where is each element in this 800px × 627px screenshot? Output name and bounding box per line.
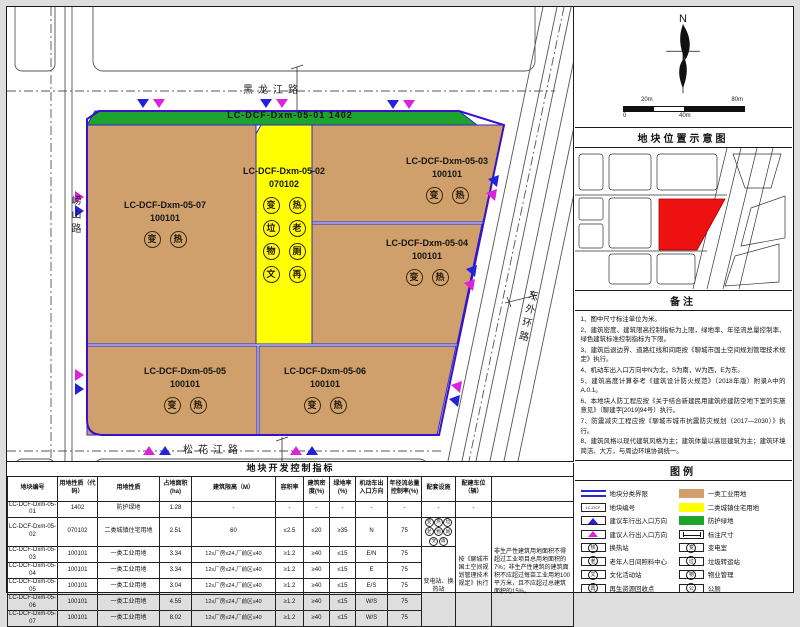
facility-icon: 热 <box>289 197 306 214</box>
ped-arrow-swatch-icon <box>581 530 606 539</box>
plot-label: LC-DCF-Dxm-05-01 1402 <box>117 109 463 122</box>
table-header-row: 地块编号用地性质（代码）用地性质占地面积(ha)建筑限高（M）容积率建筑密度(%… <box>8 476 574 501</box>
facility-icon: 热 <box>434 518 443 527</box>
legend-item: 防护绿地 <box>679 514 788 528</box>
table-cell: 75 <box>388 517 422 547</box>
table-header-cell: 占地面积(ha) <box>160 476 192 501</box>
legend-label: 建议车行出入口方向 <box>610 516 668 525</box>
facility-icon: 垃 <box>686 556 696 566</box>
plot-label: LC-DCF-Dxm-05-06100101变热 <box>241 365 409 414</box>
legend-label: 文化活动站 <box>610 570 642 579</box>
table-cell: ≥40 <box>304 579 330 595</box>
circle-swatch-icon: 热 <box>581 543 606 552</box>
pedestrian-entrance-icon <box>451 381 462 393</box>
notes-title: 备注 <box>575 291 792 311</box>
facility-icon: 再 <box>439 537 448 546</box>
facility-icon: 公 <box>686 583 696 593</box>
table-cell: - <box>330 501 356 517</box>
legend-item: 变变电室 <box>679 541 788 555</box>
table-cell: ≥40 <box>304 611 330 627</box>
table-cell: E/S <box>356 579 388 595</box>
table-cell: ≥1.2 <box>276 611 304 627</box>
table-header-cell: 容积率 <box>276 476 304 501</box>
facility-icon: 变 <box>426 187 443 204</box>
table-header-cell: 用地性质 <box>98 476 160 501</box>
plot-label: LC-DCF-Dxm-05-04100101变热 <box>343 237 511 286</box>
vehicle-entrance-icon <box>306 446 318 455</box>
table-cell: ≥40 <box>304 547 330 563</box>
table-cell: ≤2.5 <box>276 517 304 547</box>
legend-label: 标注尺寸 <box>708 530 734 539</box>
legend-item: 二类城镇住宅用地 <box>679 501 788 515</box>
legend-label: 建议人行出入口方向 <box>610 530 668 539</box>
facility-icon: 文 <box>429 537 438 546</box>
table-cell: N <box>356 517 388 547</box>
circle-swatch-icon: 物 <box>679 570 704 579</box>
table-cell: - <box>422 501 456 517</box>
legend-item: 再再生资源回收点 <box>581 582 675 596</box>
table-header-cell: 年径流总量控制率(%) <box>388 476 422 501</box>
legend-item: 标注尺寸 <box>679 528 788 542</box>
table-header-cell: 绿地率(%) <box>330 476 356 501</box>
table-cell: 1.28 <box>160 501 192 517</box>
pedestrian-entrance-icon <box>276 99 288 108</box>
facility-icon: 垃 <box>263 220 280 237</box>
table-cell: LC-DCF-Dxm-05-02 <box>8 517 58 547</box>
table-cell: W/S <box>356 611 388 627</box>
table-cell: ≤15 <box>330 611 356 627</box>
master-plan-map: 黑龙江路 松花江路 崂山路 东外环路 LC-DCF-Dxm-05-01 1402… <box>7 7 574 462</box>
table-cell: W/S <box>356 595 388 611</box>
circle-swatch-icon: 文 <box>581 570 606 579</box>
table-cell <box>492 501 574 517</box>
north-arrow-icon <box>653 21 713 95</box>
table-cell: 二类城镇住宅用地 <box>98 517 160 547</box>
facility-badge-row: 文再 <box>236 266 332 283</box>
legend-label: 防护绿地 <box>708 516 734 525</box>
table-cell: 75 <box>388 611 422 627</box>
table-cell: ≥40 <box>304 563 330 579</box>
green-swatch-icon <box>679 516 704 525</box>
plot-id: LC-DCF-Dxm-05-04 <box>343 237 511 250</box>
table-cell: 1402 <box>58 501 98 517</box>
circle-swatch-icon: 垃 <box>679 557 704 566</box>
facility-icon: 热 <box>432 269 449 286</box>
facility-icon: 老 <box>588 556 598 566</box>
facility-icon: 厕 <box>443 527 452 536</box>
legend-item: 建议人行出入口方向 <box>581 528 675 542</box>
facility-icon: 热 <box>190 397 207 414</box>
legend-item: 老老年人日间照料中心 <box>581 555 675 569</box>
table-cell: 一类工业用地 <box>98 547 160 563</box>
table-cell: 75 <box>388 547 422 563</box>
vehicle-entrance-icon <box>387 100 399 109</box>
legend-item: LC-DCF地块编号 <box>581 501 675 515</box>
scale-bar: 20m 80m 0 40m <box>623 97 743 119</box>
table-header-cell: 配建车位（辆） <box>456 476 492 501</box>
table-cell: 3.34 <box>160 547 192 563</box>
legend-item: 一类工业用地 <box>679 487 788 501</box>
facility-icon: 文 <box>263 266 280 283</box>
legend-item: 建议车行出入口方向 <box>581 514 675 528</box>
table-cell: - <box>304 501 330 517</box>
table-header-cell: 地块编号 <box>8 476 58 501</box>
notes-list: 1、图中尺寸标注单位为米。2、建筑密度、建筑限高控制指标为上限，绿地率、年径流总… <box>575 311 792 461</box>
facility-badge-row: 变热 <box>241 397 409 414</box>
note-line: 5、建筑高度计算参考《建筑设计防火规范》（2018年版）附录A中的A.0.1。 <box>581 377 786 396</box>
legend-label: 变电室 <box>708 543 727 552</box>
table-cell: 12≤厂房≤24,厂前区≤40 <box>192 563 276 579</box>
vehicle-entrance-icon <box>159 446 171 455</box>
facility-icon: 热 <box>452 187 469 204</box>
scale-label: 40m <box>679 113 691 119</box>
table-cell: ≤15 <box>330 579 356 595</box>
table-cell: 75 <box>388 563 422 579</box>
boundary-swatch-icon <box>581 490 606 497</box>
table-cell: - <box>456 501 492 517</box>
pedestrian-entrance-icon <box>75 369 84 381</box>
control-indicators-table-panel: 地块开发控制指标地块编号用地性质（代码）用地性质占地面积(ha)建筑限高（M）容… <box>7 463 574 592</box>
facility-icon: 物 <box>686 570 696 580</box>
vehicle-entrance-icon <box>137 99 149 108</box>
table-cell: 一类工业用地 <box>98 611 160 627</box>
scale-bar-strip <box>623 106 745 112</box>
legend-label: 换热站 <box>610 543 629 552</box>
table-cell: ≥35 <box>330 517 356 547</box>
plot-code: 100101 <box>363 168 531 181</box>
table-cell: 8.02 <box>160 611 192 627</box>
facility-icon: 热 <box>330 397 347 414</box>
table-cell: 100101 <box>58 611 98 627</box>
table-cell: E/N <box>356 547 388 563</box>
facility-icon: 热 <box>588 543 598 553</box>
table-cell: 100101 <box>58 595 98 611</box>
table-cell: LC-DCF-Dxm-05-01 <box>8 501 58 517</box>
table-cell: 75 <box>388 579 422 595</box>
legend-label: 物业管理 <box>708 570 734 579</box>
table-cell: LC-DCF-Dxm-05-04 <box>8 563 58 579</box>
facility-icon: 老 <box>425 527 434 536</box>
table-title: 地块开发控制指标 <box>8 463 574 477</box>
table-cell: 100101 <box>58 563 98 579</box>
plot-code: 100101 <box>81 212 249 225</box>
note-line: 8、建筑风格以现代建筑风格为主；建筑体量以高层建筑为主；建筑环境简洁、大方，与周… <box>581 437 786 456</box>
table-cell: ≥1.2 <box>276 547 304 563</box>
table-cell: ≥1.2 <box>276 563 304 579</box>
circle-swatch-icon: 变 <box>679 543 704 552</box>
table-cell: - <box>276 501 304 517</box>
table-cell: ≥40 <box>304 595 330 611</box>
legend-label: 地块分类界限 <box>610 489 648 498</box>
table-cell: 070102 <box>58 517 98 547</box>
plan-sheet: 黑龙江路 松花江路 崂山路 东外环路 LC-DCF-Dxm-05-01 1402… <box>6 6 794 593</box>
legend: 地块分类界限LC-DCF地块编号建议车行出入口方向建议人行出入口方向热换热站老老… <box>575 481 792 606</box>
circle-swatch-icon: 公 <box>679 584 704 593</box>
facility-icon: 厕 <box>289 243 306 260</box>
pedestrian-entrance-icon <box>153 99 165 108</box>
facility-icons-cell: 变热垃老物厕文再 <box>422 517 456 547</box>
table-cell: ≤15 <box>330 595 356 611</box>
vehicle-entrance-icon <box>75 383 84 395</box>
legend-label: 一类工业用地 <box>708 489 746 498</box>
location-map <box>575 148 792 291</box>
legend-item: 热换热站 <box>581 541 675 555</box>
legend-title: 图例 <box>575 461 792 481</box>
table-cell: 75 <box>388 595 422 611</box>
note-line: 7、防震减灾工程应按《聊城市城市抗震防灾规划（2017—2030）》执行。 <box>581 417 786 436</box>
facility-icon: 再 <box>588 583 598 593</box>
facility-badge-row: 变热 <box>81 231 249 248</box>
north-scale-box: N 20m 80m 0 40m <box>575 7 792 128</box>
plot-id: LC-DCF-Dxm-05-03 <box>363 155 531 168</box>
table-cell: LC-DCF-Dxm-05-03 <box>8 547 58 563</box>
note-line: 1、图中尺寸标注单位为米。 <box>581 315 786 325</box>
table-header-cell <box>492 476 574 501</box>
pedestrian-entrance-icon <box>290 446 302 455</box>
legend-label: 二类城镇住宅用地 <box>708 503 759 512</box>
plot-label: LC-DCF-Dxm-05-07100101变热 <box>81 199 249 248</box>
facility-badge-row: 物厕 <box>236 243 332 260</box>
legend-label: 地块编号 <box>610 503 636 512</box>
highlighted-plot <box>659 199 725 250</box>
tan-swatch-icon <box>679 489 704 498</box>
table-cell: 12≤厂房≤24,厂前区≤40 <box>192 611 276 627</box>
note-line: 3、建筑后退边界、道路红线和间距按《聊城市国土空间规划管理技术规定》执行。 <box>581 346 786 365</box>
note-line: 4、机动车出入口方向中N为北，S为南，W为西，E为东。 <box>581 366 786 376</box>
legend-label: 公厕 <box>708 584 721 593</box>
facility-badge-row: 变热 <box>363 187 531 204</box>
plot-code: 100101 <box>343 250 511 263</box>
scale-label: 20m <box>641 97 653 103</box>
table-cell: 防护绿地 <box>98 501 160 517</box>
location-map-title: 地块位置示意图 <box>575 128 792 148</box>
table-cell: - <box>356 501 388 517</box>
table-header-cell: 配套设施 <box>422 476 456 501</box>
facility-badge-row: 变热 <box>343 269 511 286</box>
pedestrian-entrance-icon <box>143 446 155 455</box>
table-cell: ≤20 <box>304 517 330 547</box>
table-cell: 3.04 <box>160 579 192 595</box>
table-cell: 12≤厂房≤24,厂前区≤40 <box>192 579 276 595</box>
facility-icon: 物 <box>263 243 280 260</box>
table-cell: 60 <box>192 517 276 547</box>
legend-item: 物物业管理 <box>679 568 788 582</box>
table-header-cell: 建筑密度(%) <box>304 476 330 501</box>
table-cell: ≤15 <box>330 547 356 563</box>
vehicle-entrance-icon <box>449 395 460 407</box>
plot-code: 100101 <box>241 378 409 391</box>
facility-icon: 变 <box>406 269 423 286</box>
road-label-north: 黑龙江路 <box>243 81 303 96</box>
plot-code: 070102 <box>236 178 332 191</box>
facility-merged-cell: 变电站、换热站 <box>422 547 456 627</box>
parking-note-cell: 按《聊城市国土空间规划管理技术规定》执行 <box>456 517 492 627</box>
legend-item: 公公厕 <box>679 582 788 596</box>
yellow-swatch-icon <box>679 503 704 512</box>
table-cell: 4.55 <box>160 595 192 611</box>
remark-cell: 非生产性建筑用地面积不得超过工业项目总用地面积的7%；非生产性建筑的建筑面积不应… <box>492 517 574 627</box>
legend-item: 垃垃圾转运站 <box>679 555 788 569</box>
vehicle-entrance-icon <box>260 99 272 108</box>
table-header-cell: 建筑限高（M） <box>192 476 276 501</box>
scale-label: 80m <box>731 97 743 103</box>
plotno-swatch-icon: LC-DCF <box>581 503 606 512</box>
table-cell: 12≤厂房≤24,厂前区≤40 <box>192 547 276 563</box>
plot-id: LC-DCF-Dxm-05-02 <box>236 165 332 178</box>
facility-badge-row: 垃老 <box>236 220 332 237</box>
table-cell: ≥1.2 <box>276 579 304 595</box>
facility-icon: 变 <box>425 518 434 527</box>
ped-arrow-icon <box>588 531 598 537</box>
table-cell: 2.51 <box>160 517 192 547</box>
table-title-row: 地块开发控制指标 <box>8 463 574 477</box>
plot-id: LC-DCF-Dxm-05-01 1402 <box>117 109 463 122</box>
note-line: 6、本地块人防工程应按《关于结合新建民用建筑修建防空地下室的实施意见》（聊建字[… <box>581 397 786 416</box>
table-cell: - <box>388 501 422 517</box>
legend-label: 垃圾转运站 <box>708 557 740 566</box>
table-cell: 一类工业用地 <box>98 563 160 579</box>
pedestrian-entrance-icon <box>403 100 415 109</box>
plot-id: LC-DCF-Dxm-05-06 <box>241 365 409 378</box>
facility-icon: 文 <box>588 570 598 580</box>
facility-icon: 垃 <box>443 518 452 527</box>
car-arrow-icon <box>588 518 598 524</box>
table-cell: E <box>356 563 388 579</box>
facility-badge-row: 变热 <box>236 197 332 214</box>
table-row: LC-DCF-Dxm-05-011402防护绿地1.28-------- <box>8 501 574 517</box>
legend-item: 地块分类界限 <box>581 487 675 501</box>
facility-icon: 物 <box>434 527 443 536</box>
table-cell: LC-DCF-Dxm-05-07 <box>8 611 58 627</box>
facility-icon: 变 <box>164 397 181 414</box>
table-cell: 一类工业用地 <box>98 579 160 595</box>
plot-label: LC-DCF-Dxm-05-02070102变热垃老物厕文再 <box>236 165 332 283</box>
plot-id: LC-DCF-Dxm-05-07 <box>81 199 249 212</box>
plot-label: LC-DCF-Dxm-05-03100101变热 <box>363 155 531 204</box>
facility-icon: 再 <box>289 266 306 283</box>
table-cell: 一类工业用地 <box>98 595 160 611</box>
legend-label: 再生资源回收点 <box>610 584 655 593</box>
side-panel: N 20m 80m 0 40m 地块位置示意图 <box>575 7 792 590</box>
table-cell: - <box>192 501 276 517</box>
legend-item: 文文化活动站 <box>581 568 675 582</box>
table-cell: 100101 <box>58 579 98 595</box>
facility-icon: 变 <box>304 397 321 414</box>
facility-icon: 变 <box>263 197 280 214</box>
dim-swatch-icon <box>679 530 704 539</box>
legend-label: 老年人日间照料中心 <box>610 557 668 566</box>
circle-swatch-icon: 再 <box>581 584 606 593</box>
table-cell: LC-DCF-Dxm-05-05 <box>8 579 58 595</box>
facility-icon: 热 <box>170 231 187 248</box>
control-indicators-table: 地块开发控制指标地块编号用地性质（代码）用地性质占地面积(ha)建筑限高（M）容… <box>7 463 574 627</box>
scale-label: 0 <box>623 113 626 119</box>
table-header-cell: 用地性质（代码） <box>58 476 98 501</box>
table-cell: 3.34 <box>160 563 192 579</box>
table-cell: 12≤厂房≤24,厂前区≤40 <box>192 595 276 611</box>
car-arrow-swatch-icon <box>581 516 606 525</box>
facility-icon: 老 <box>289 220 306 237</box>
note-line: 2、建筑密度、建筑限高控制指标为上限，绿地率、年径流总量控制率、绿色建筑标准控制… <box>581 326 786 345</box>
circle-swatch-icon: 老 <box>581 557 606 566</box>
table-header-cell: 机动车出入口方向 <box>356 476 388 501</box>
table-cell: 100101 <box>58 547 98 563</box>
table-cell: ≤15 <box>330 563 356 579</box>
road-label-west: 崂山路 <box>67 195 82 237</box>
table-cell: LC-DCF-Dxm-05-06 <box>8 595 58 611</box>
facility-icon: 变 <box>686 543 696 553</box>
table-row: LC-DCF-Dxm-05-02070102二类城镇住宅用地2.5160≤2.5… <box>8 517 574 547</box>
road-label-south: 松花江路 <box>183 441 243 456</box>
facility-icon: 变 <box>144 231 161 248</box>
table-cell: ≥1.2 <box>276 595 304 611</box>
